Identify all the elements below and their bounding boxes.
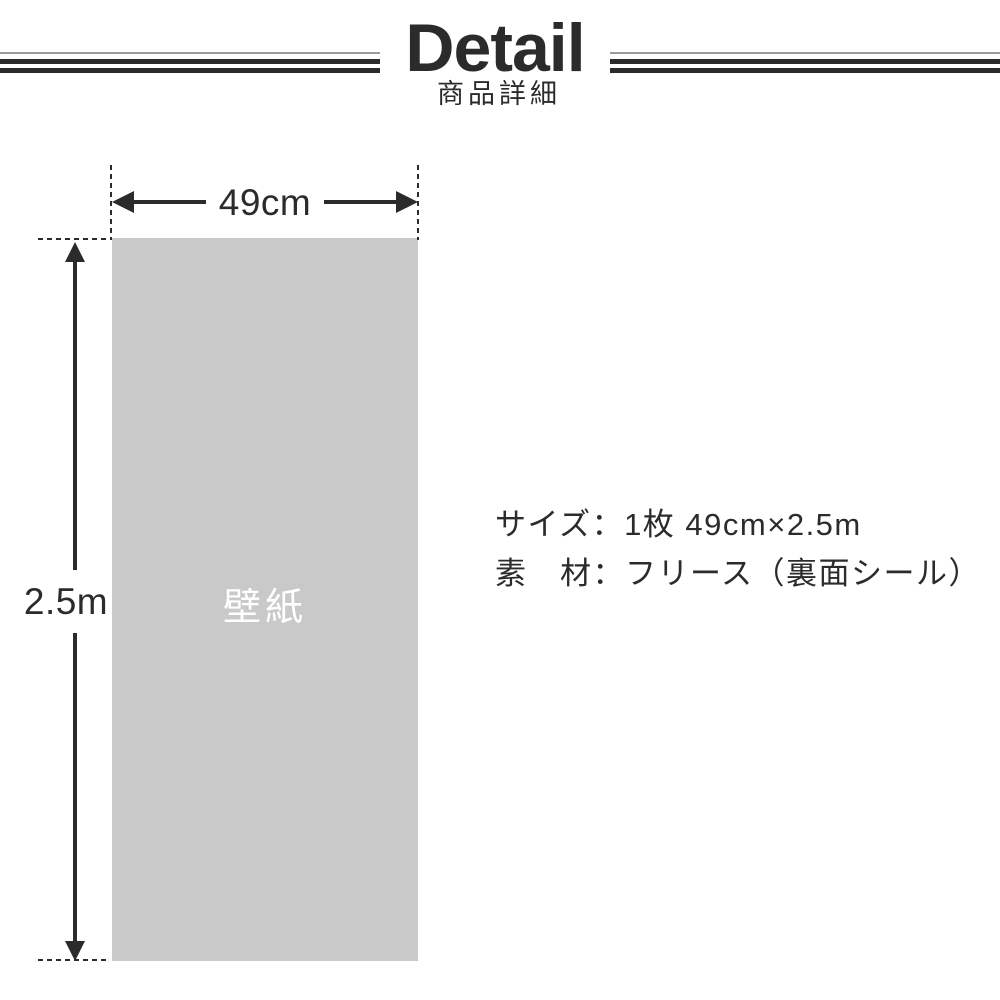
- arrowhead-down-icon: [65, 941, 85, 961]
- rule-thick-line: [0, 68, 380, 73]
- width-dimension-label: 49cm: [219, 184, 311, 221]
- arrow-shaft: [324, 200, 396, 204]
- spec-text: サイズ：1枚 49cm×2.5m 素 材：フリース（裏面シール）: [495, 500, 981, 598]
- rule-thin-line: [610, 52, 1000, 54]
- arrow-shaft: [134, 200, 206, 204]
- arrowhead-left-icon: [112, 191, 134, 213]
- width-dimension-arrow: 49cm: [112, 191, 418, 213]
- detail-title: Detail: [405, 14, 584, 82]
- dashed-guide-horizontal-top: [38, 238, 110, 240]
- product-detail-page: Detail 商品詳細 壁紙 49cm 2.5m サイズ：1枚 49cm×2.5…: [0, 0, 1000, 1000]
- arrowhead-up-icon: [65, 242, 85, 262]
- rule-thick-line: [610, 59, 1000, 64]
- arrow-shaft: [73, 633, 77, 941]
- rule-thick-line: [0, 59, 380, 64]
- arrow-shaft: [73, 262, 77, 570]
- header-rule-right: [610, 52, 1000, 73]
- height-dimension-label: 2.5m: [24, 583, 108, 620]
- wallpaper-label: 壁紙: [223, 589, 307, 627]
- height-dimension-arrow: 2.5m: [64, 242, 86, 961]
- header-rule-left: [0, 52, 380, 73]
- wallpaper-panel: 壁紙: [112, 238, 418, 961]
- detail-subtitle: 商品詳細: [437, 81, 561, 108]
- rule-thick-line: [610, 68, 1000, 73]
- arrowhead-right-icon: [396, 191, 418, 213]
- rule-thin-line: [0, 52, 380, 54]
- spec-size-line: サイズ：1枚 49cm×2.5m: [495, 500, 981, 549]
- spec-material-line: 素 材：フリース（裏面シール）: [495, 549, 981, 598]
